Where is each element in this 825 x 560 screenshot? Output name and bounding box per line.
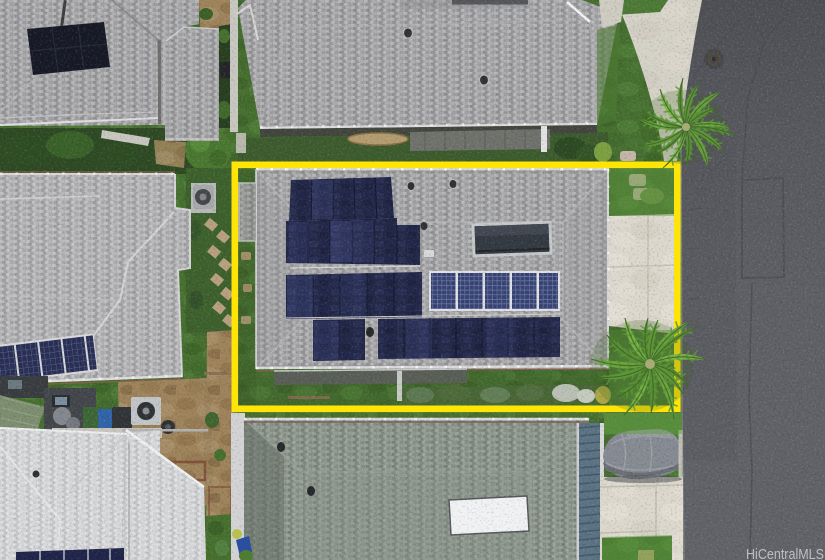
svg-text:HiCentralMLS: HiCentralMLS [746, 546, 824, 560]
